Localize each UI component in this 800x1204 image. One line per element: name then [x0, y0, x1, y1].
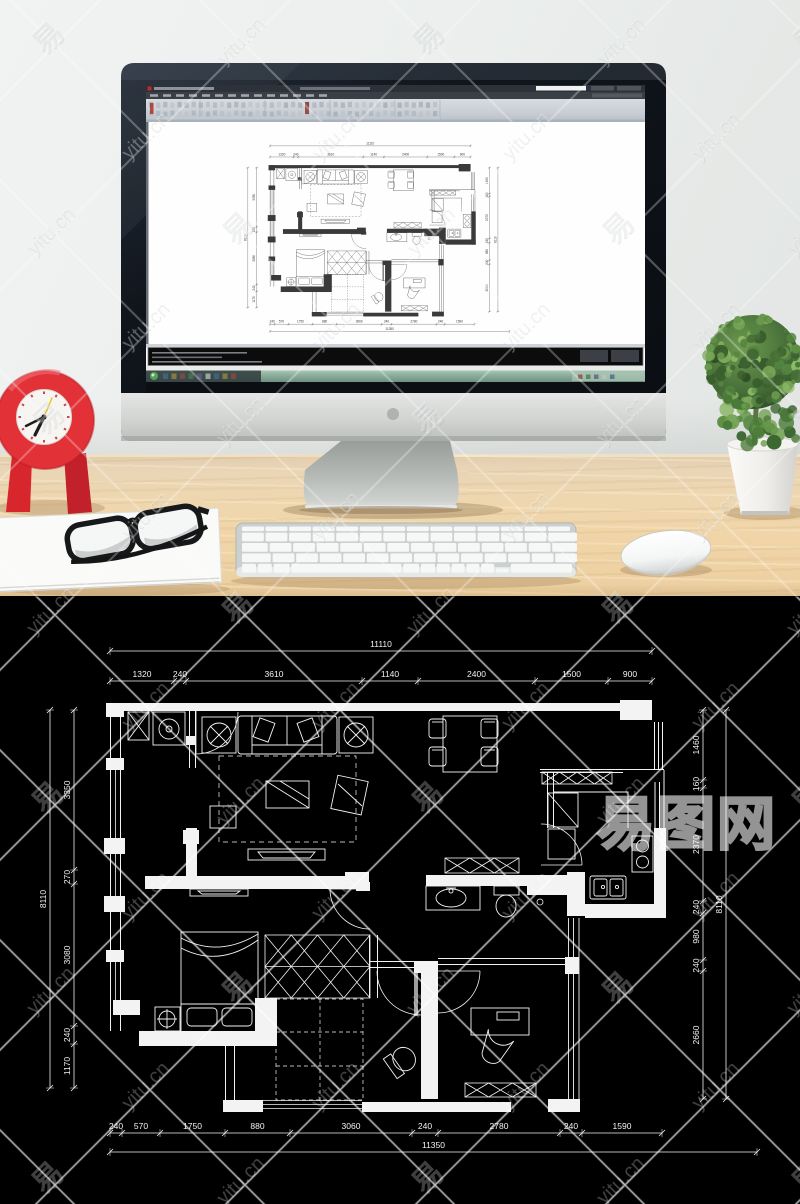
- svg-text:易图网: 易图网: [597, 792, 777, 857]
